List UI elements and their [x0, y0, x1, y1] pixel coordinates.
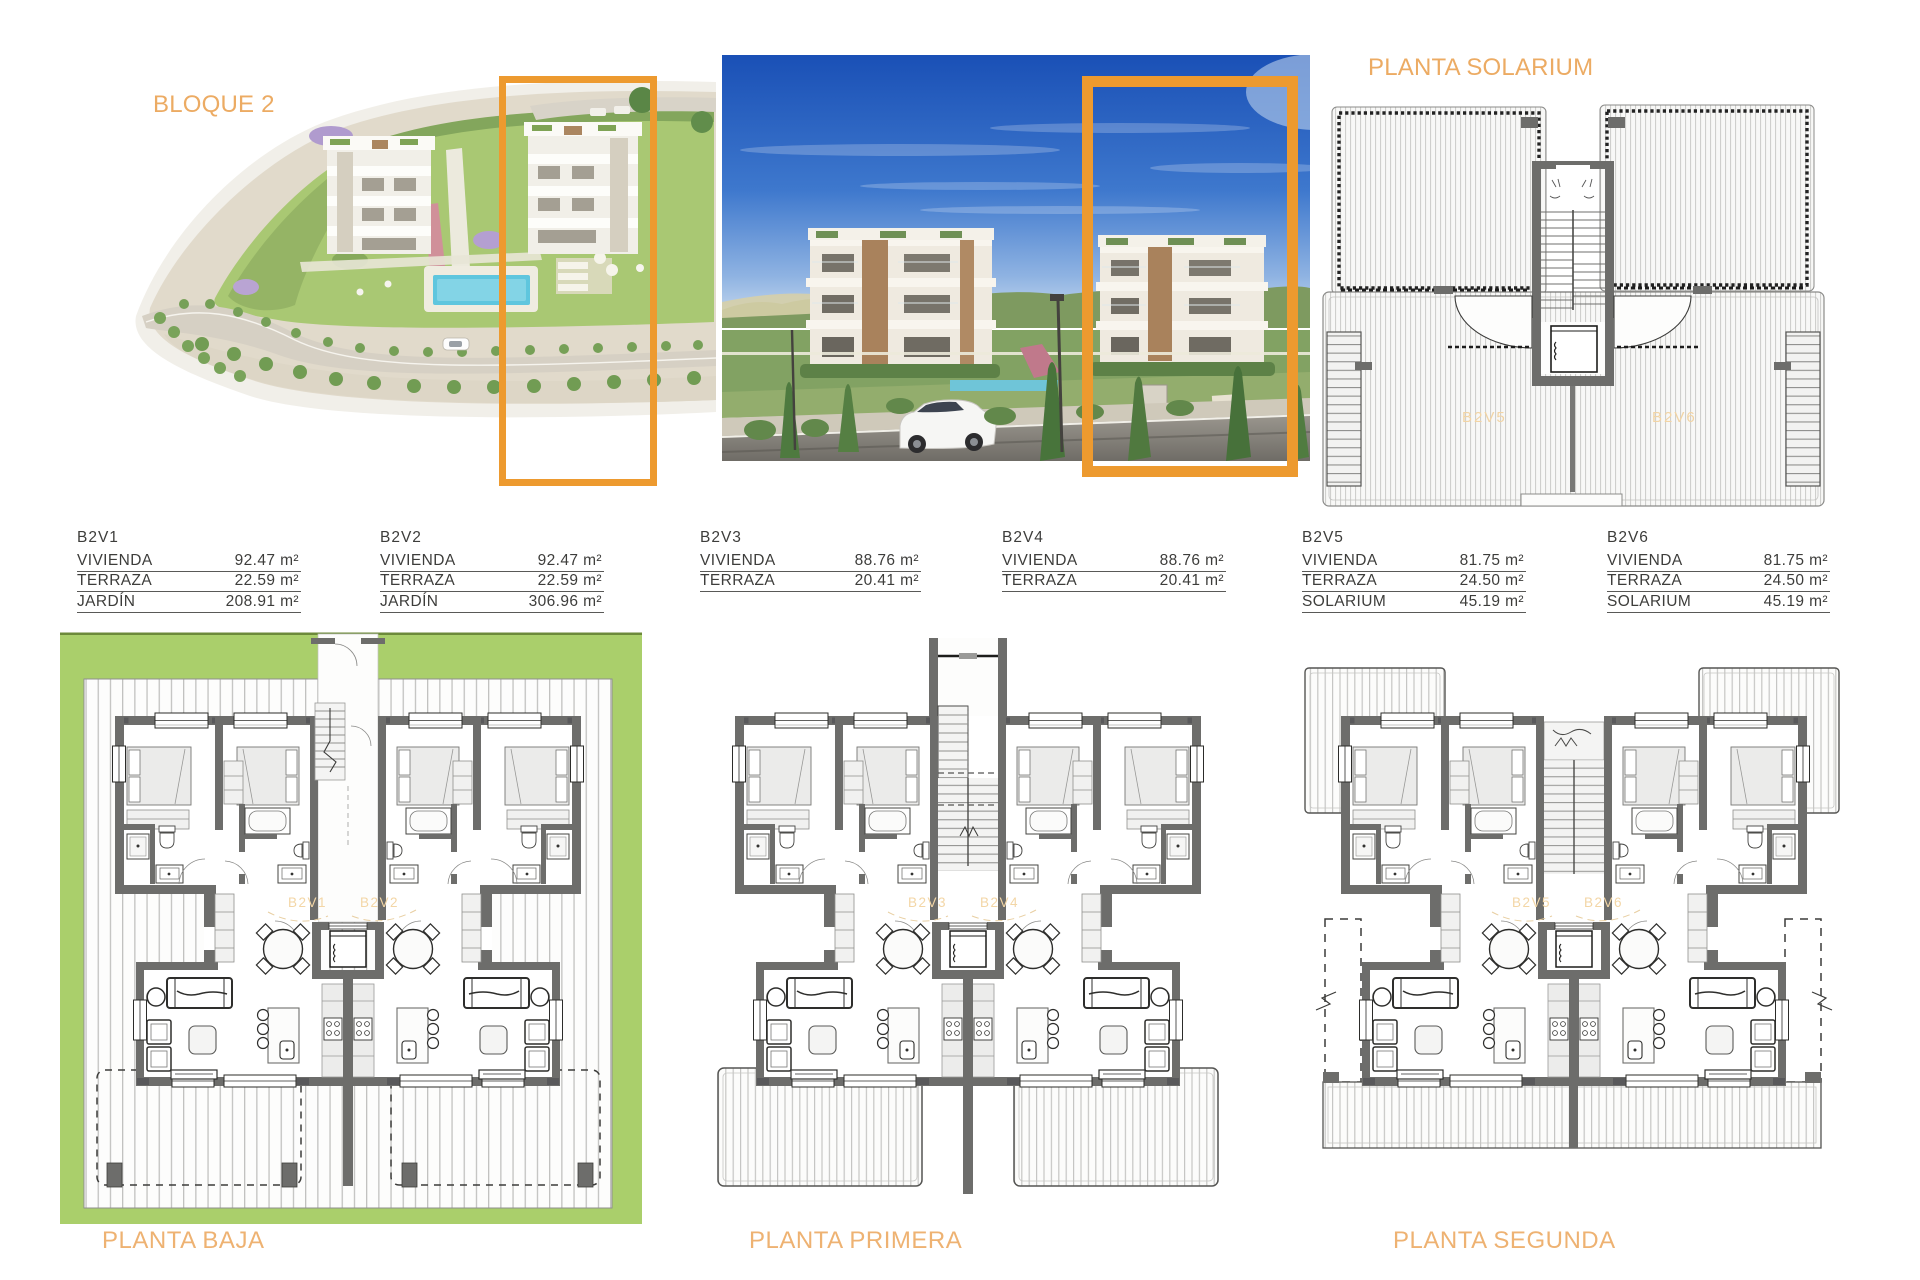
svg-text:B2V4: B2V4: [980, 895, 1019, 910]
svg-text:B2V5: B2V5: [1512, 895, 1551, 910]
svg-text:B2V3: B2V3: [908, 895, 947, 910]
svg-text:B2V1: B2V1: [288, 895, 327, 910]
svg-text:B2V6: B2V6: [1584, 895, 1623, 910]
svg-text:B2V5: B2V5: [1462, 409, 1507, 426]
svg-text:B2V2: B2V2: [360, 895, 399, 910]
svg-text:B2V6: B2V6: [1652, 409, 1697, 426]
